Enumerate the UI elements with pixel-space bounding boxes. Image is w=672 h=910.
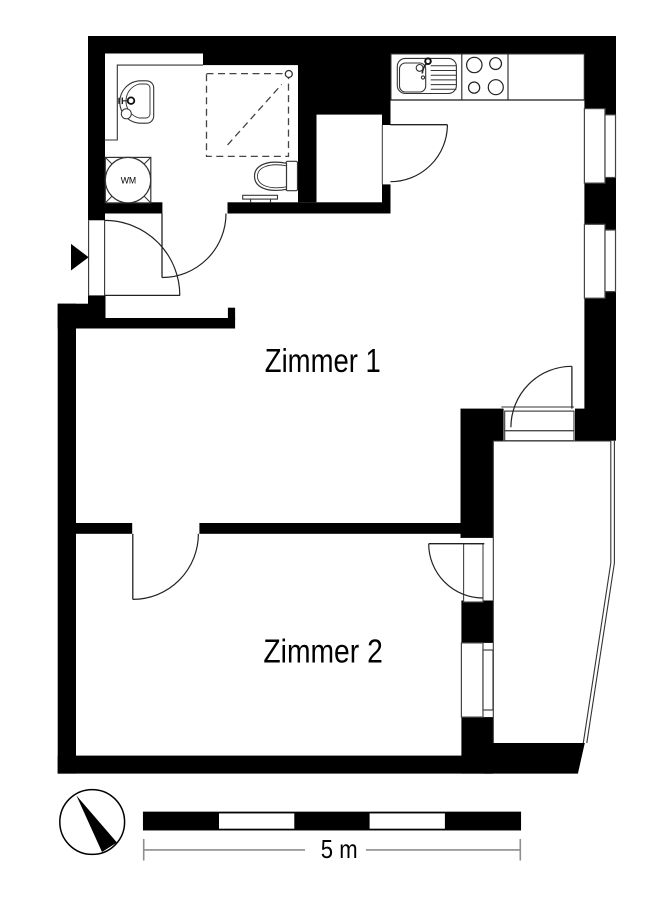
svg-text:Zimmer 2: Zimmer 2 bbox=[263, 634, 382, 671]
svg-text:WM: WM bbox=[121, 175, 137, 185]
svg-text:Zimmer 1: Zimmer 1 bbox=[265, 343, 381, 380]
svg-text:5 m: 5 m bbox=[321, 836, 358, 864]
